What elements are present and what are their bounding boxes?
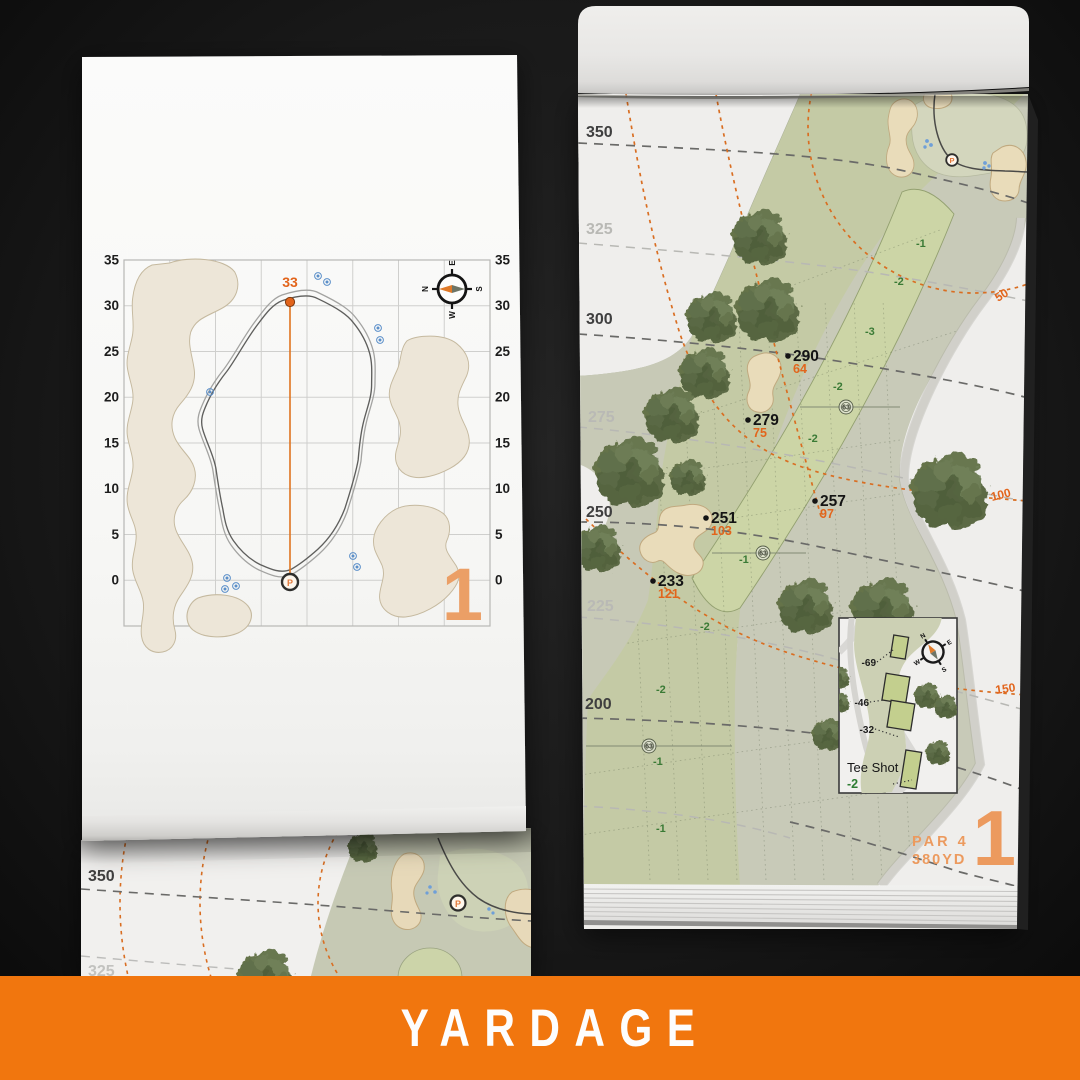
svg-text:-46: -46 — [855, 698, 870, 709]
svg-text:150: 150 — [994, 680, 1016, 697]
svg-text:103: 103 — [711, 524, 732, 538]
svg-text:YARDAGE: YARDAGE — [401, 1000, 710, 1059]
svg-text:-1: -1 — [739, 554, 749, 566]
svg-text:30: 30 — [104, 298, 119, 313]
svg-text:-32: -32 — [860, 725, 875, 736]
svg-text:-2: -2 — [656, 684, 666, 696]
svg-text:P: P — [949, 156, 954, 165]
svg-text:97: 97 — [820, 507, 834, 521]
svg-text:300: 300 — [586, 311, 613, 328]
svg-text:30: 30 — [495, 298, 510, 313]
svg-text:5: 5 — [111, 527, 119, 542]
svg-text:275: 275 — [588, 409, 615, 426]
svg-text:-2: -2 — [847, 777, 858, 791]
svg-text:PAR 4: PAR 4 — [912, 834, 969, 850]
svg-text:1: 1 — [442, 553, 483, 636]
svg-text:0: 0 — [111, 573, 119, 588]
svg-text:E: E — [448, 260, 457, 266]
svg-text:-2: -2 — [700, 621, 710, 633]
svg-text:75: 75 — [753, 426, 767, 440]
svg-text:W: W — [448, 311, 457, 319]
svg-text:5: 5 — [495, 527, 503, 542]
svg-text:250: 250 — [586, 504, 613, 521]
svg-text:-2: -2 — [833, 381, 843, 393]
svg-text:325: 325 — [586, 221, 613, 238]
svg-text:10: 10 — [495, 481, 510, 496]
svg-text:-69: -69 — [862, 658, 877, 669]
svg-text:P: P — [455, 899, 461, 909]
svg-text:63: 63 — [842, 405, 850, 412]
svg-text:15: 15 — [495, 436, 511, 451]
svg-text:35: 35 — [104, 253, 120, 268]
svg-text:225: 225 — [587, 598, 614, 615]
svg-text:25: 25 — [495, 344, 511, 359]
svg-text:-2: -2 — [894, 276, 904, 288]
svg-text:Tee Shot: Tee Shot — [847, 760, 899, 775]
svg-text:64: 64 — [793, 362, 807, 376]
svg-text:33: 33 — [282, 274, 298, 290]
svg-text:350: 350 — [586, 124, 613, 141]
svg-text:S: S — [475, 286, 484, 292]
svg-text:P: P — [287, 578, 293, 588]
svg-text:200: 200 — [585, 696, 612, 713]
svg-text:10: 10 — [104, 481, 119, 496]
svg-text:-1: -1 — [653, 756, 663, 768]
svg-text:380YD: 380YD — [912, 852, 966, 868]
svg-text:-2: -2 — [808, 433, 818, 445]
svg-text:15: 15 — [104, 436, 120, 451]
svg-text:20: 20 — [104, 390, 119, 405]
svg-text:0: 0 — [495, 573, 503, 588]
svg-text:35: 35 — [495, 253, 511, 268]
svg-text:-1: -1 — [916, 238, 926, 250]
svg-text:-3: -3 — [865, 326, 875, 338]
svg-text:N: N — [421, 286, 430, 292]
svg-text:350: 350 — [88, 868, 115, 885]
svg-text:-1: -1 — [656, 823, 666, 835]
svg-text:1: 1 — [973, 794, 1016, 882]
svg-text:25: 25 — [104, 344, 120, 359]
svg-text:20: 20 — [495, 390, 510, 405]
svg-text:121: 121 — [658, 587, 679, 601]
